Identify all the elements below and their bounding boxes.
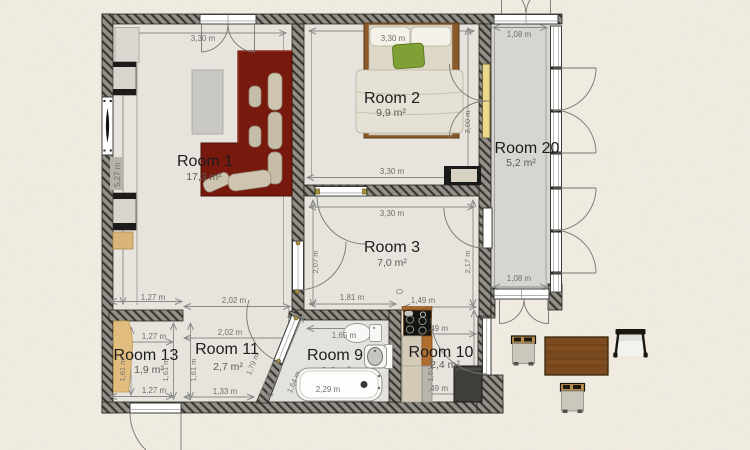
svg-text:1,65 m: 1,65 m xyxy=(332,331,357,340)
svg-text:5,27 m: 5,27 m xyxy=(113,162,122,187)
svg-text:1,9 m²: 1,9 m² xyxy=(134,364,164,376)
svg-text:2,02 m: 2,02 m xyxy=(218,328,243,337)
svg-text:1,27 m: 1,27 m xyxy=(142,332,167,341)
svg-text:1,08 m: 1,08 m xyxy=(507,30,532,39)
svg-text:17,3 m²: 17,3 m² xyxy=(186,171,222,183)
svg-text:1,61 m: 1,61 m xyxy=(161,359,170,382)
svg-text:Room 9: Room 9 xyxy=(307,347,363,364)
svg-text:7,0 m²: 7,0 m² xyxy=(377,257,407,269)
svg-text:1,27 m: 1,27 m xyxy=(141,293,166,302)
svg-text:Room 2: Room 2 xyxy=(364,90,420,107)
svg-text:Room 3: Room 3 xyxy=(364,239,420,256)
svg-text:Room 1: Room 1 xyxy=(177,153,233,170)
svg-text:2,02 m: 2,02 m xyxy=(222,296,247,305)
svg-text:3,30 m: 3,30 m xyxy=(380,167,405,176)
svg-text:2,07 m: 2,07 m xyxy=(311,251,320,274)
svg-text:1,08 m: 1,08 m xyxy=(507,274,532,283)
svg-text:1,81 m: 1,81 m xyxy=(340,293,365,302)
svg-text:Room 11: Room 11 xyxy=(195,341,259,358)
svg-text:3,30 m: 3,30 m xyxy=(380,209,405,218)
svg-text:Room 20: Room 20 xyxy=(495,140,560,157)
svg-text:,49 m: ,49 m xyxy=(428,324,448,333)
svg-text:3,30 m: 3,30 m xyxy=(381,34,406,43)
svg-text:1,33 m: 1,33 m xyxy=(213,387,238,396)
svg-text:,49 m: ,49 m xyxy=(428,384,448,393)
svg-text:1,61 m: 1,61 m xyxy=(426,359,435,382)
svg-text:5,2 m²: 5,2 m² xyxy=(506,157,536,169)
svg-text:2,7 m²: 2,7 m² xyxy=(213,361,243,373)
svg-text:3,00 m: 3,00 m xyxy=(463,111,472,134)
svg-text:9,9 m²: 9,9 m² xyxy=(376,107,406,119)
svg-text:1,61 m: 1,61 m xyxy=(189,359,198,382)
svg-text:3,30 m: 3,30 m xyxy=(191,34,216,43)
svg-text:1,49 m: 1,49 m xyxy=(411,296,436,305)
svg-text:2,17 m: 2,17 m xyxy=(463,251,472,274)
svg-text:1,27 m: 1,27 m xyxy=(142,386,167,395)
svg-text:2,29 m: 2,29 m xyxy=(316,385,341,394)
svg-text:1,61 m: 1,61 m xyxy=(118,359,127,382)
